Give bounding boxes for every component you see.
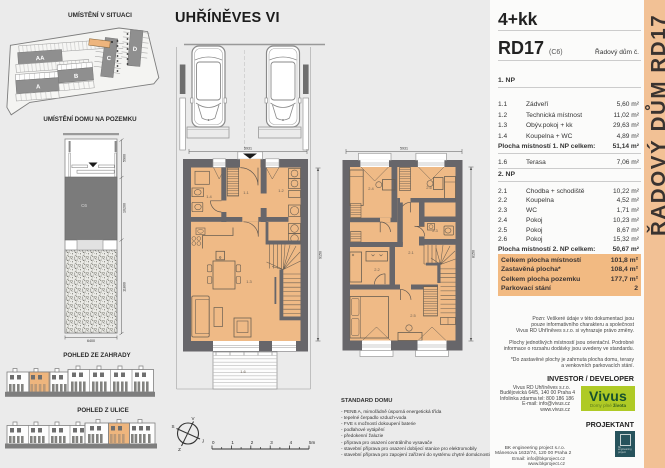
svg-text:UMÍSTĚNÍ DOMU NA POZEMKU: UMÍSTĚNÍ DOMU NA POZEMKU — [43, 115, 137, 123]
svg-text:S: S — [171, 424, 174, 429]
svg-text:1.2: 1.2 — [278, 188, 284, 193]
svg-text:AA: AA — [36, 56, 46, 63]
svg-text:2.5: 2.5 — [410, 313, 416, 318]
svg-text:10200: 10200 — [123, 203, 127, 213]
svg-text:4: 4 — [290, 440, 293, 445]
svg-text:C6: C6 — [81, 203, 87, 208]
svg-text:2.2: 2.2 — [374, 267, 380, 272]
svg-text:5931: 5931 — [400, 147, 408, 151]
svg-text:11800: 11800 — [123, 282, 127, 292]
svg-text:J: J — [202, 439, 204, 444]
svg-text:V: V — [191, 416, 194, 421]
svg-text:2.6: 2.6 — [426, 185, 432, 190]
svg-text:2: 2 — [251, 440, 254, 445]
svg-text:1.4: 1.4 — [206, 194, 212, 199]
svg-text:5900: 5900 — [123, 154, 127, 162]
svg-text:2.1: 2.1 — [408, 250, 414, 255]
svg-text:POHLED ZE ZAHRADY: POHLED ZE ZAHRADY — [63, 352, 131, 359]
svg-text:1.3: 1.3 — [246, 279, 252, 284]
svg-text:5931: 5931 — [244, 147, 252, 151]
svg-text:UMÍSTĚNÍ V SITUACI: UMÍSTĚNÍ V SITUACI — [68, 10, 132, 19]
svg-text:POHLED Z ULICE: POHLED Z ULICE — [77, 407, 129, 414]
svg-text:Z: Z — [178, 447, 181, 452]
svg-text:3: 3 — [270, 440, 273, 445]
svg-text:9150: 9150 — [319, 251, 323, 259]
svg-text:1: 1 — [231, 440, 234, 445]
svg-text:0: 0 — [212, 440, 215, 445]
svg-text:2.4: 2.4 — [368, 186, 374, 191]
svg-text:1.1: 1.1 — [243, 190, 249, 195]
svg-text:5m: 5m — [309, 440, 316, 445]
svg-text:1.6: 1.6 — [240, 369, 246, 374]
svg-text:2.3: 2.3 — [432, 228, 438, 233]
svg-text:6400: 6400 — [87, 339, 95, 343]
svg-text:8150: 8150 — [472, 250, 476, 258]
